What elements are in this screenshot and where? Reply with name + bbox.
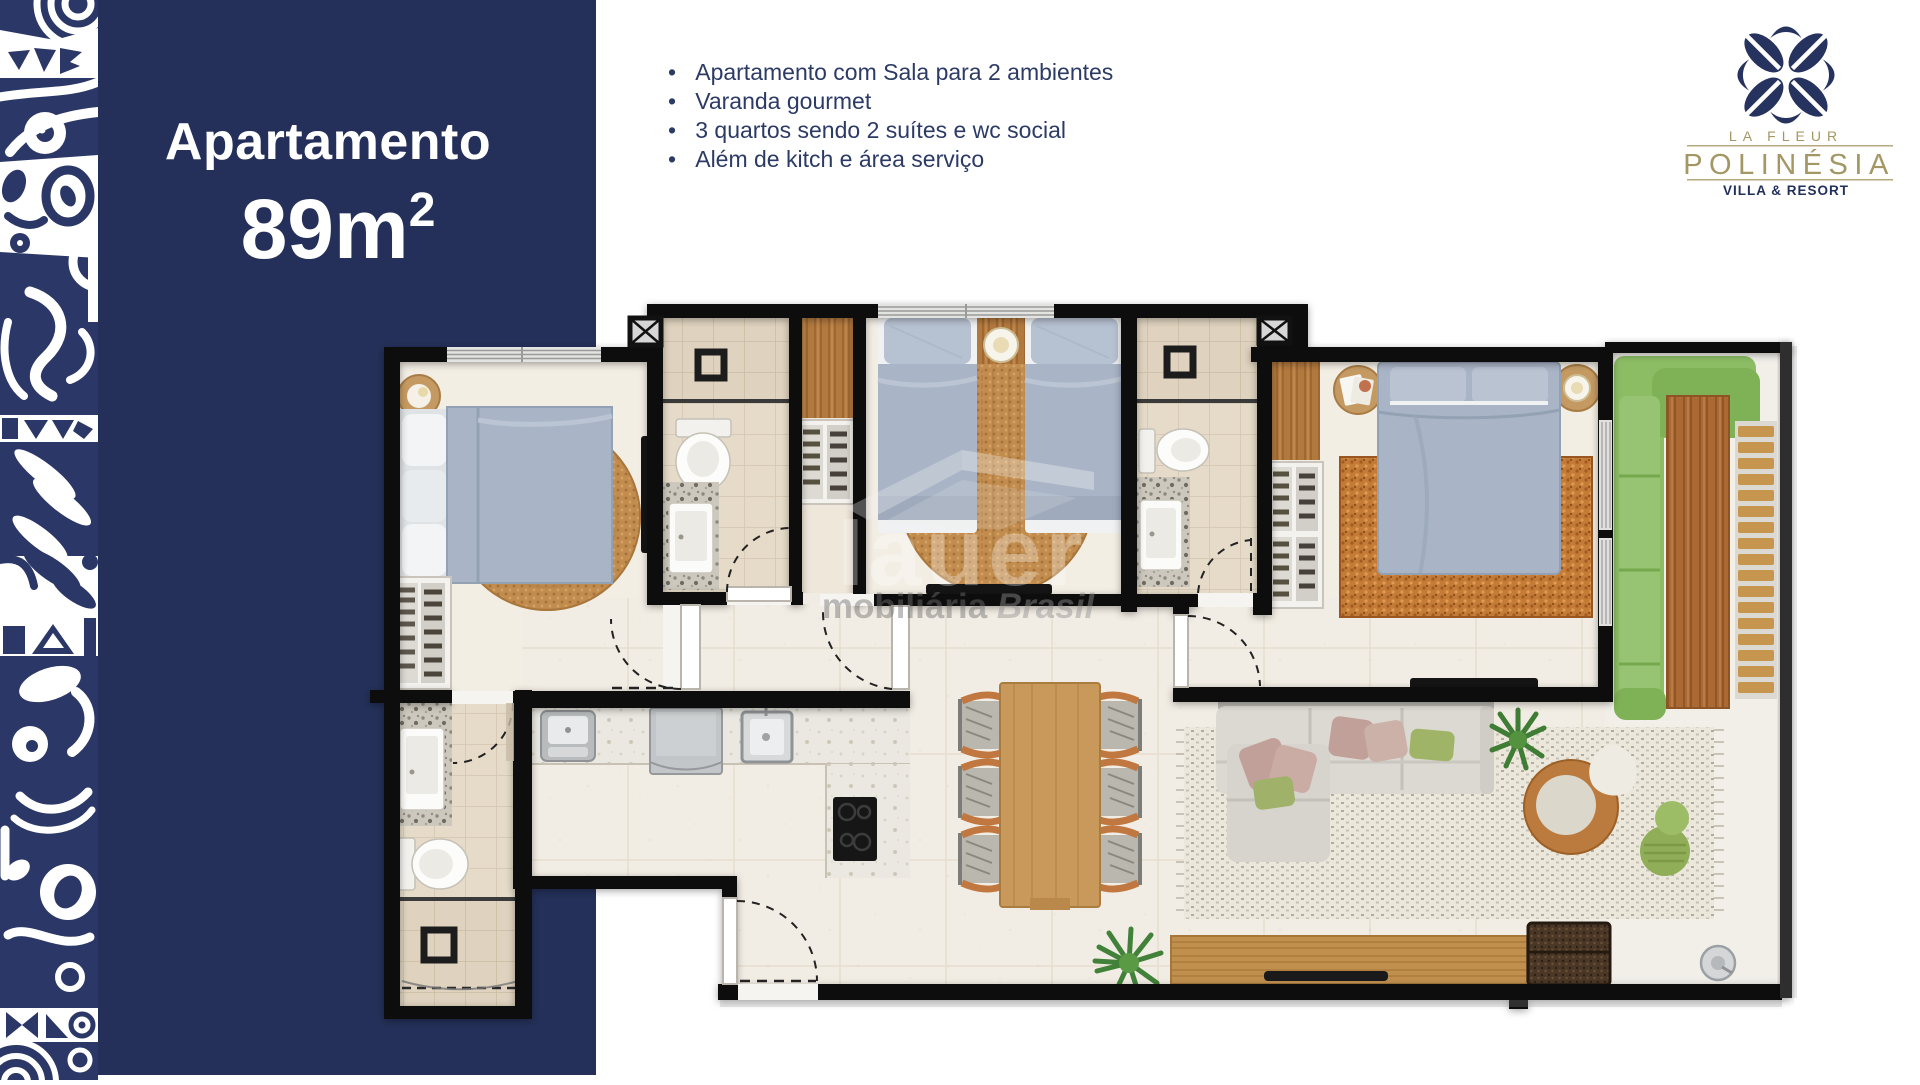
svg-text:mobiliária Brasil: mobiliária Brasil	[822, 587, 1096, 626]
